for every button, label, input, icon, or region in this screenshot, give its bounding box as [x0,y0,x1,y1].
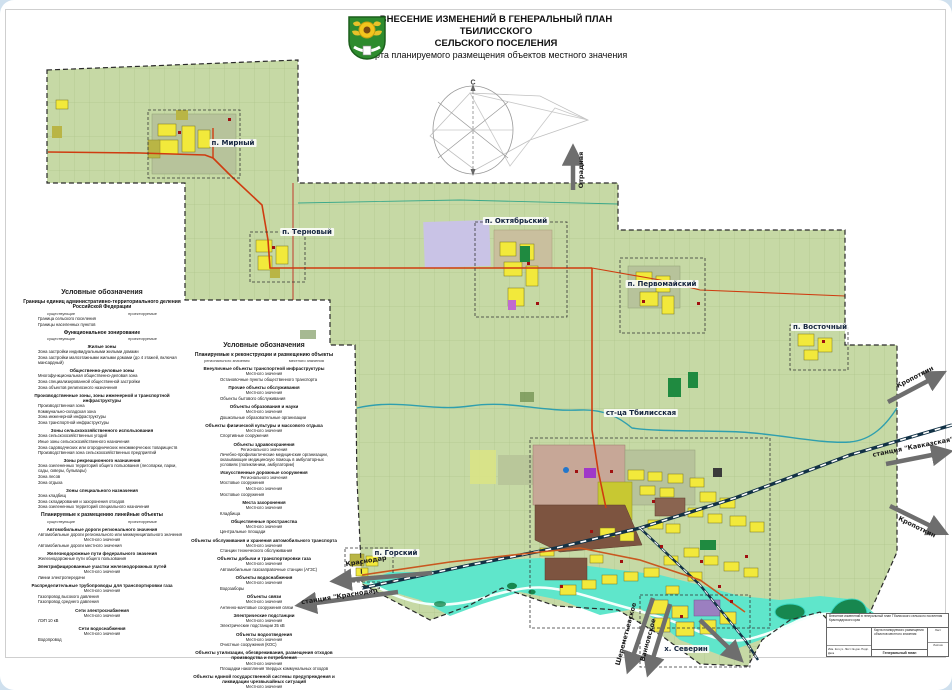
legend-row-label: Местного значения [84,632,121,637]
legend-row-label: Антенно-мачтовые сооружения связи [220,606,293,611]
legend-row-label: Границы населенных пунктов [38,323,95,328]
legend-row: Зона кладбищ [38,494,182,499]
legend-row: Производственная зона [38,404,182,409]
legend-row: Антенно-мачтовые сооружения связи [220,606,342,611]
legend-row: Зона озелененных территорий общего польз… [38,464,182,473]
legend-row: Остановочные пункты общественного трансп… [220,378,342,383]
direction-arrow [890,506,943,532]
legend-row: Кладбища [220,512,342,517]
compass-rose-icon [420,78,600,193]
legend-row: Водопровод [38,638,182,643]
legend-row: Условные обозначения [22,289,182,297]
legend-row-label: Зона озелененных территорий общего польз… [38,464,182,473]
legend-row-label: Водопровод [38,638,62,643]
legend-row-label: Железнодорожные пути общего пользования [38,557,126,562]
legend-col-planned: проектируемые [128,337,157,341]
legend-row: Железнодорожные пути общего пользования [38,557,182,562]
legend-row-label: Местного значения [246,410,283,415]
legend-row: Иные зоны сельскохозяйственного назначен… [38,440,182,445]
legend-row: Автомобильные газозаправочные станции (А… [220,568,342,573]
legend-row: Сети электроснабжения [22,608,182,613]
legend-row-label: Водозаборы [220,587,244,592]
legend-row-label: Местного значения [246,600,283,605]
legend-row-label: Условные обозначения [223,342,305,350]
legend-row-label: Спортивные сооружения [220,434,268,439]
legend-row-label: Местного значения [246,581,283,586]
legend-row: Функциональное зонирование [22,331,182,337]
legend-col-planned: проектируемые [128,312,157,316]
legend-row: Станции технического обслуживания [220,549,342,554]
legend-row: ЛЭП 10 кВ [38,619,182,624]
zone-patch [423,220,491,268]
legend-row: Планируемые к размещению линейные объект… [22,513,182,519]
legend-row-label: Зона озелененных территорий специального… [38,505,149,510]
legend-row-label: Автомобильные дороги местного значения [38,544,122,549]
legend-row-label: Условные обозначения [61,289,143,297]
legend-row: Местного значения [186,600,342,605]
legend-row-label: Зона застройки малоэтажными жилыми домам… [38,356,182,365]
legend-row-label: Мостовые сооружения [220,493,264,498]
legend-row: Местного значения [186,410,342,415]
legend-row: Электрические подстанции 35 кВ [220,624,342,629]
legend-row: Автомобильные дороги регионального значе… [22,527,182,532]
legend-functional-zoning: Условные обозначения Границы единиц адми… [22,287,182,644]
legend-row: Центральные площади [220,530,342,535]
legend-row-label: Зона транспортной инфраструктуры [38,421,109,426]
legend-row: Объекты бытового обслуживания [220,397,342,402]
legend-row-label: Сети электроснабжения [75,608,129,613]
legend-row: Автомобильные дороги местного значения [38,544,182,549]
legend-row: Дошкольные образовательные организации [220,416,342,421]
map-sheet: ВНЕСЕНИЕ ИЗМЕНЕНИЙ В ГЕНЕРАЛЬНЫЙ ПЛАН ТБ… [0,0,952,690]
title-block-map-name: Карта планируемого размещения объектов м… [872,628,927,650]
legend-row: Зона отдыха [38,481,182,486]
legend-row: Спортивные сооружения [220,434,342,439]
legend-row-label: Местного значения [84,570,121,575]
legend-row: Зона застройки малоэтажными жилыми домам… [38,356,182,365]
legend-row: Объекты здравоохранения [186,442,342,447]
legend-row-label: Кладбища [220,512,240,517]
legend-row: Производственные зоны, зоны инженерной и… [22,393,182,403]
legend-row: Объекты водоотведения [186,632,342,637]
legend-row-label: ЛЭП 10 кВ [38,619,58,624]
legend-row-label: Зона объектов религиозного назначения [38,386,117,391]
legend-row: регионального значения местного значения [186,359,342,363]
legend-row: Местного значения [186,506,342,511]
legend-row: Зона транспортной инфраструктуры [38,421,182,426]
legend-row: Линии электропередачи [38,576,182,581]
legend-row: Зона озелененных территорий специального… [38,505,182,510]
legend-row: существующие проектируемые [22,520,182,524]
coat-of-arms-icon [347,15,387,61]
legend-row-label: Местного значения [246,506,283,511]
legend-row-label: Очистные сооружения (КОС) [220,643,277,648]
legend-row: Условные обозначения [186,342,342,350]
title-block-sheet-label: Лист [928,628,948,643]
legend-col-existing: существующие [47,520,75,524]
legend-row: Водозаборы [220,587,342,592]
legend-row-label: Зона кладбищ [38,494,66,499]
legend-row-label: Линии электропередачи [38,576,85,581]
legend-row: Мостовые сооружения [220,493,342,498]
legend-col-existing: существующие [47,337,75,341]
legend-row-label: Производственная зона [38,404,85,409]
legend-row-label: Центральные площади [220,530,265,535]
legend-row-label: Электрические подстанции 35 кВ [220,624,285,629]
legend-row-label: Лечебно-профилактические медицинские орг… [220,453,342,467]
legend-row: Объекты обслуживания и хранения автомоби… [186,538,342,543]
legend-row: Объекты единой государственной системы п… [186,674,342,684]
legend-col-local: местного значения [289,359,324,363]
legend-row-label: Объекты обслуживания и хранения автомоби… [191,538,337,543]
legend-row-label: Объекты здравоохранения [233,442,294,447]
title-block: Внесение изменений в генеральный план Тб… [826,613,949,657]
legend-row-label: Объекты бытового обслуживания [220,397,285,402]
legend-row-label: Автомобильные газозаправочные станции (А… [220,568,317,573]
legend-row-label: Площадки накопления твердых коммунальных… [220,667,328,672]
legend-row: Границы единиц административно-территори… [22,300,182,311]
legend-row-label: Производственная зона сельскохозяйственн… [38,451,156,456]
title-block-doc-type: Генеральный план [872,650,927,656]
legend-row: Зона объектов религиозного назначения [38,386,182,391]
title-block-project: Внесение изменений в генеральный план Тб… [827,614,948,628]
legend-row-label: Иные зоны сельскохозяйственного назначен… [38,440,129,445]
legend-row: Границы населенных пунктов [38,323,182,328]
legend-row: Производственная зона сельскохозяйственн… [38,451,182,456]
legend-row-label: Объекты единой государственной системы п… [186,674,342,684]
legend-planned-objects: Условные обозначения Планируемые к рекон… [186,340,342,690]
legend-row-label: Остановочные пункты общественного трансп… [220,378,317,383]
legend-row: Объекты утилизации, обезвреживания, разм… [186,650,342,660]
legend-row: Местного значения [186,487,342,492]
legend-row: существующие проектируемые [22,337,182,341]
legend-col-planned: проектируемые [128,520,157,524]
legend-row: Газопровод среднего давления [38,600,182,605]
legend-row-label: Зона специализированной общественной зас… [38,380,140,385]
legend-row-label: Объекты утилизации, обезвреживания, разм… [186,650,342,660]
legend-row: Зона специализированной общественной зас… [38,380,182,385]
legend-row: Площадки накопления твердых коммунальных… [220,667,342,672]
legend-row: Очистные сооружения (КОС) [220,643,342,648]
legend-row-label: Зона лесов [38,475,60,480]
legend-row: Местного значения [22,589,182,594]
legend-row-label: Планируемые к размещению линейные объект… [41,513,163,519]
legend-row-label: Местного значения [84,589,121,594]
legend-row: Зона лесов [38,475,182,480]
legend-row-label: Производственные зоны, зоны инженерной и… [22,393,182,403]
title-block-revision-cells: Изм. Кол.уч. Лист № док. Подп. Дата [827,628,872,656]
legend-row-label: Газопровод среднего давления [38,600,99,605]
legend-row-label: Автомобильные дороги регионального значе… [47,527,158,532]
legend-row-label: Станции технического обслуживания [220,549,292,554]
legend-col-regional: регионального значения [204,359,249,363]
legend-row-label: Дошкольные образовательные организации [220,416,306,421]
legend-row: Местного значения [186,581,342,586]
legend-row-label: Границы единиц административно-территори… [22,300,182,311]
legend-row-label: Местного значения [84,614,121,619]
legend-row-label: Зона отдыха [38,481,63,486]
legend-row-label: Зоны специального назначения [66,488,138,493]
legend-row: Лечебно-профилактические медицинские орг… [220,453,342,467]
legend-row-label: Объекты водоотведения [236,632,292,637]
legend-row: Регионального значения [186,476,342,481]
title-block-sheets-label: Листов [928,643,948,657]
